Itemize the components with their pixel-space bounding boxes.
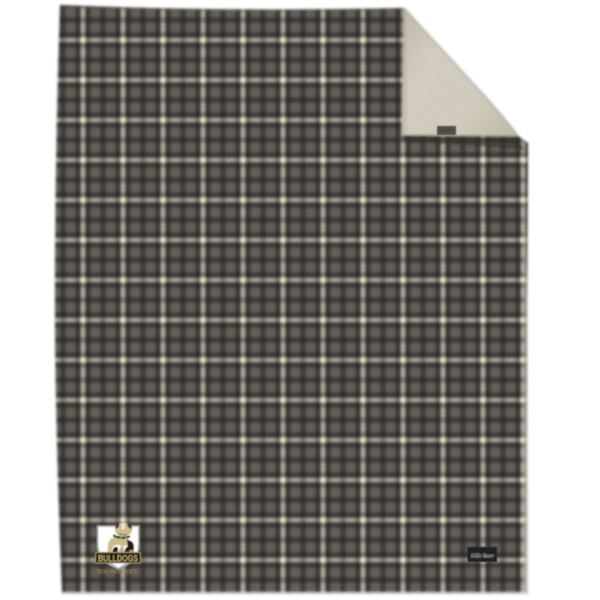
svg-text:ICE HOCKEY: ICE HOCKEY — [98, 570, 138, 576]
svg-text:Eddie Bauer: Eddie Bauer — [470, 553, 494, 560]
svg-text:BULLDOGS: BULLDOGS — [98, 554, 138, 564]
